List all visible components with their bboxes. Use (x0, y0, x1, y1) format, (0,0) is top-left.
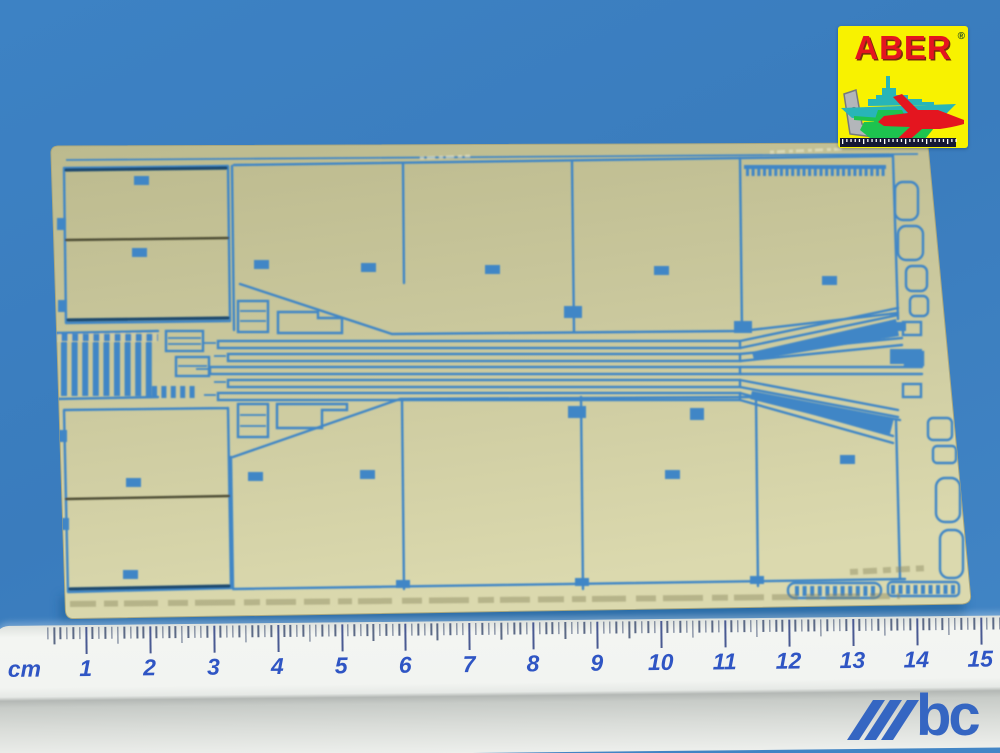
product-photo: cm 123456789101112131415 bc ABER ® (0, 0, 1000, 753)
ruler-tick (136, 626, 138, 638)
ruler-tick (558, 622, 560, 634)
ruler-tick (373, 624, 375, 641)
etched-tooth (125, 342, 131, 396)
etched-tooth (853, 168, 856, 176)
ruler-tick (980, 618, 982, 645)
etched-tooth (791, 168, 794, 176)
etched-tooth (110, 333, 115, 342)
etched-tooth (842, 168, 845, 176)
etched-tooth (944, 585, 948, 594)
ruler-tick (769, 620, 771, 632)
ruler-tick (251, 625, 253, 637)
ruler-tick (143, 626, 145, 638)
ruler-tick (916, 618, 918, 645)
ruler-tick (705, 621, 707, 633)
logo-ruler-tick (918, 139, 919, 142)
ruler-tick (309, 625, 311, 642)
ruler-tick (622, 621, 624, 633)
etched-tooth (786, 168, 789, 176)
ruler-tick (168, 626, 170, 638)
ruler-tick (475, 623, 477, 635)
ruler-tick (954, 618, 956, 630)
ruler-tick (437, 623, 439, 640)
brand-name: ABER (838, 26, 968, 67)
etched-tooth (752, 168, 755, 176)
ruler-tick (405, 624, 407, 651)
ruler-tick (903, 618, 905, 630)
etched-tooth (135, 342, 141, 396)
ruler-tick (507, 623, 509, 635)
logo-ruler-tick (846, 139, 847, 142)
ruler-tick (98, 627, 100, 639)
etched-tooth (142, 333, 147, 342)
ruler-tick (162, 626, 164, 638)
ruler-tick (884, 619, 886, 636)
ruler-tick (929, 618, 931, 630)
ruler-tick (283, 625, 285, 637)
etched-tooth (899, 585, 903, 594)
ruler-tick (552, 622, 554, 634)
ruler-tick (47, 627, 49, 639)
ruler-tick (226, 626, 228, 638)
ruler-tick (187, 626, 189, 638)
ruler-tick (424, 623, 426, 635)
ruler-number: 4 (271, 653, 284, 680)
ruler-tick (635, 621, 637, 633)
logo-ruler-tick (880, 139, 881, 142)
logo-ruler-tick (934, 139, 935, 142)
ruler-tick (890, 619, 892, 631)
ruler-tick (577, 622, 579, 634)
etched-tooth (190, 386, 195, 398)
ruler-tick (711, 620, 713, 632)
logo-ruler-tick (913, 139, 914, 142)
logo-ruler-tick (955, 139, 956, 142)
etched-tooth (929, 585, 933, 594)
ruler-tick (871, 619, 873, 631)
logo-ruler-tick (951, 139, 952, 142)
ruler-tick (92, 627, 94, 639)
ruler-tick (392, 624, 394, 636)
ruler-tick (149, 626, 151, 653)
ruler-tick (385, 624, 387, 636)
ruler-number: 3 (207, 654, 220, 681)
ruler-tick (411, 624, 413, 636)
ruler-tick (571, 622, 573, 634)
ruler-tick (846, 619, 848, 631)
ruler-tick (654, 621, 656, 633)
etched-tooth (803, 168, 806, 176)
ruler-number: 11 (713, 648, 737, 675)
ruler-tick (462, 623, 464, 635)
logo-ruler-tick (867, 139, 868, 142)
logo-ruler-tick (884, 139, 885, 144)
logo-ruler-tick (930, 139, 931, 142)
ruler-tick (526, 622, 528, 634)
logo-ruler-tick (926, 139, 927, 144)
ruler-tick (258, 625, 260, 637)
ruler-number: 7 (462, 651, 475, 678)
logo-ruler-tick (922, 139, 923, 142)
ruler-number: 10 (648, 649, 674, 676)
etched-tooth (78, 333, 83, 342)
etched-tooth (914, 585, 918, 594)
ruler-tick (762, 620, 764, 632)
ruler-number: 9 (590, 650, 603, 677)
ruler-tick (699, 621, 701, 633)
ruler-tick (194, 626, 196, 638)
etched-tooth (152, 333, 157, 342)
ruler-tick (239, 625, 241, 637)
ruler-tick (488, 623, 490, 635)
ruler-tick (647, 621, 649, 633)
ruler-tick (245, 625, 247, 642)
logo-ruler-tick (842, 139, 843, 144)
logo-ruler-tick (850, 139, 851, 142)
ruler-number: 12 (776, 648, 802, 675)
ruler-unit-label: cm (8, 656, 42, 683)
etched-tooth (769, 168, 772, 176)
ruler-tick (328, 624, 330, 636)
logo-ruler-tick (939, 139, 940, 142)
ruler-tick (909, 618, 911, 630)
ruler-tick (379, 624, 381, 636)
ruler-tick (973, 618, 975, 630)
etched-tooth (146, 342, 152, 396)
ruler-number: 1 (79, 655, 92, 682)
ruler-tick (315, 625, 317, 637)
ruler-tick (443, 623, 445, 635)
ruler-tick (897, 619, 899, 631)
ruler-tick (986, 618, 988, 630)
ruler-tick (596, 622, 598, 649)
ruler-number: 5 (335, 652, 348, 679)
ruler-tick (322, 625, 324, 637)
logo-ruler-tick (876, 139, 877, 142)
ruler-tick (545, 622, 547, 634)
ruler-tick (852, 619, 854, 646)
ruler-tick (66, 627, 68, 639)
ruler-tick (232, 625, 234, 637)
ruler-number: 14 (903, 646, 929, 673)
ruler-tick (72, 627, 74, 639)
etched-tooth (68, 333, 73, 342)
ruler-tick (922, 618, 924, 630)
ruler-tick (564, 622, 566, 639)
registered-trademark: ® (958, 31, 965, 42)
ruler-tick (449, 623, 451, 635)
etched-tooth (848, 168, 851, 176)
etched-tooth (152, 386, 157, 398)
logo-ruler-tick (859, 139, 860, 142)
etched-tooth (808, 168, 811, 176)
ruler-tick (584, 622, 586, 634)
ruler-tick (539, 622, 541, 634)
ruler-tick (641, 621, 643, 633)
etched-tooth (180, 386, 185, 398)
logo-ruler-tick (888, 139, 889, 142)
ruler-tick (673, 621, 675, 633)
ruler-tick (814, 619, 816, 631)
etched-tooth (836, 168, 839, 176)
ruler-tick (532, 622, 534, 649)
ruler-tick (603, 622, 605, 634)
ruler-number: 6 (399, 652, 412, 679)
aber-logo: ABER ® (838, 26, 968, 148)
ruler-tick (366, 624, 368, 636)
logo-ruler-tick (871, 139, 872, 142)
etched-tooth (131, 333, 136, 342)
logo-ruler-tick (897, 139, 898, 142)
ruler-tick (794, 620, 796, 632)
ruler-tick (398, 624, 400, 636)
ruler-tick (833, 619, 835, 631)
ruler-tick (111, 627, 113, 639)
ruler-strip-icon (840, 138, 956, 147)
ruler-tick (104, 627, 106, 639)
etched-tooth (820, 168, 823, 176)
ruler-tick (679, 621, 681, 633)
ruler-tick (290, 625, 292, 637)
ruler-tick (347, 624, 349, 636)
ruler-tick (156, 626, 158, 638)
ruler-tick (775, 620, 777, 632)
etched-tooth (831, 168, 834, 176)
ruler-tick (219, 626, 221, 638)
ruler-tick (334, 624, 336, 636)
ruler-tick (79, 627, 81, 639)
etched-tooth (72, 342, 78, 396)
ruler-tick (175, 626, 177, 638)
etched-tooth (757, 168, 760, 176)
ruler-tick (181, 626, 183, 643)
etched-tooth (746, 168, 749, 176)
etched-tooth (906, 585, 910, 594)
ruler-tick (750, 620, 752, 632)
store-watermark: bc (860, 690, 1000, 750)
etched-tooth (870, 168, 873, 176)
ruler-tick (341, 624, 343, 651)
etched-tooth (825, 168, 828, 176)
ruler-number: 13 (839, 647, 865, 674)
logo-ruler-tick (943, 139, 944, 142)
logo-ruler-tick (863, 139, 864, 144)
etched-tooth (797, 168, 800, 176)
etched-tooth (865, 168, 868, 176)
ruler-tick (271, 625, 273, 637)
ruler-tick (213, 626, 215, 653)
etched-tooth (61, 342, 67, 396)
ruler-tick (935, 618, 937, 630)
etched-tooth (891, 585, 895, 594)
etched-tooth (859, 168, 862, 176)
ruler-tick (941, 618, 943, 630)
ruler-tick (948, 618, 950, 635)
ruler-tick (117, 627, 119, 644)
ruler-tick (430, 623, 432, 635)
ruler-tick (303, 625, 305, 637)
ruler-tick (788, 620, 790, 647)
ruler-tick (85, 627, 87, 654)
ruler-tick (520, 622, 522, 634)
ruler-tick (820, 619, 822, 636)
ruler-tick (354, 624, 356, 636)
ruler-tick (456, 623, 458, 635)
etched-tooth (936, 585, 940, 594)
ruler-tick (609, 622, 611, 634)
logo-ruler-tick (909, 139, 910, 142)
ruler-tick (60, 627, 62, 639)
logo-ruler-tick (905, 139, 906, 144)
ruler-tick (590, 622, 592, 634)
ruler-tick (628, 621, 630, 638)
ruler-number: 8 (526, 650, 539, 677)
ruler-tick (743, 620, 745, 632)
ruler-tick (692, 621, 694, 638)
ruler-tick (660, 621, 662, 648)
ruler-tick (481, 623, 483, 635)
ruler-tick (469, 623, 471, 650)
logo-ruler-tick (947, 139, 948, 144)
ruler-tick (124, 627, 126, 639)
ruler-tick (501, 623, 503, 640)
ruler-tick (839, 619, 841, 631)
etched-tooth (814, 168, 817, 176)
ruler-tick (865, 619, 867, 631)
ruler-tick (993, 618, 995, 630)
etched-tooth (882, 168, 885, 176)
ruler-tick (360, 624, 362, 636)
ruler-tick (782, 620, 784, 632)
etched-tooth (774, 168, 777, 176)
ruler-tick (807, 619, 809, 631)
etched-tooth (763, 168, 766, 176)
ruler-tick (200, 626, 202, 638)
etched-tooth (171, 386, 176, 398)
etched-tooth (951, 585, 955, 594)
etched-tooth (114, 342, 120, 396)
ruler-tick (718, 620, 720, 632)
ruler-tick (207, 626, 209, 638)
ruler-tick (616, 621, 618, 633)
ruler-tick (961, 618, 963, 630)
ruler-tick (296, 625, 298, 637)
etched-tooth (103, 342, 109, 396)
ruler-number: 15 (967, 646, 993, 673)
etched-tooth (863, 586, 867, 596)
ruler-tick (53, 627, 55, 644)
ruler-tick (967, 618, 969, 630)
ruler-number: 2 (143, 654, 156, 681)
ruler-tick (801, 620, 803, 632)
ruler-tick (513, 623, 515, 635)
ruler-tick (737, 620, 739, 632)
ruler-tick (878, 619, 880, 631)
ruler-tick (130, 627, 132, 639)
etched-tooth (921, 585, 925, 594)
ruler: cm 123456789101112131415 (0, 615, 1000, 753)
etched-tooth (93, 342, 99, 396)
logo-ruler-tick (892, 139, 893, 142)
ruler-tick (731, 620, 733, 632)
ruler-tick (494, 623, 496, 635)
ruler-tick (417, 624, 419, 636)
ruler-tick (277, 625, 279, 652)
watermark-letters: bc (916, 682, 978, 749)
etched-tooth (121, 333, 126, 342)
ruler-tick (667, 621, 669, 633)
etched-tooth (99, 333, 104, 342)
logo-ruler-tick (855, 139, 856, 142)
etched-tooth (57, 333, 62, 342)
ruler-tick (756, 620, 758, 637)
logo-graphic (838, 66, 968, 148)
ruler-tick (686, 621, 688, 633)
etched-tooth (82, 342, 88, 396)
etched-tooth (876, 168, 879, 176)
etched-tooth (89, 333, 94, 342)
ruler-tick (264, 625, 266, 637)
ruler-tick (858, 619, 860, 631)
etched-tooth (161, 386, 166, 398)
etched-tooth (780, 168, 783, 176)
ruler-tick (826, 619, 828, 631)
ruler-tick (724, 620, 726, 647)
logo-ruler-tick (901, 139, 902, 142)
